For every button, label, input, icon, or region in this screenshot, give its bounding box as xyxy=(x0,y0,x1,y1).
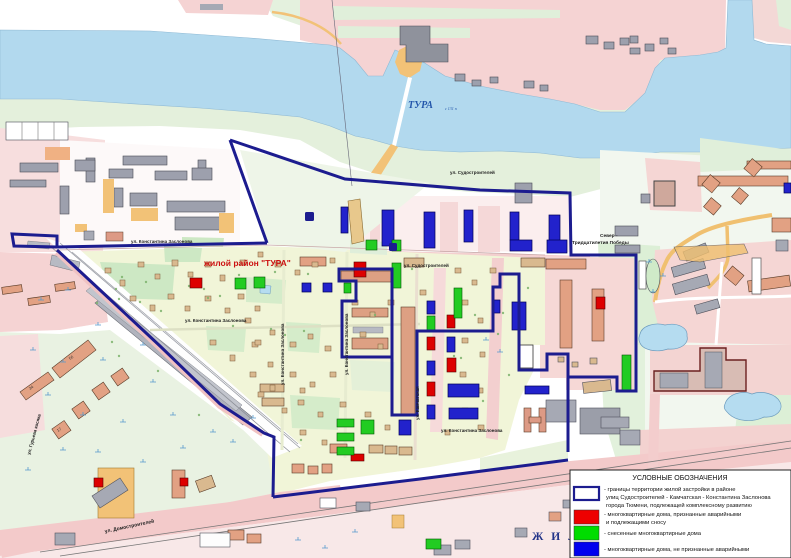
svg-text:с 131 п: с 131 п xyxy=(445,106,457,111)
svg-text:- границы территории жилой зас: - границы территории жилой застройки в р… xyxy=(604,486,735,493)
svg-text:ул. Константина Заслонова: ул. Константина Заслонова xyxy=(280,323,285,385)
svg-text:ул. Судостроителей: ул. Судостроителей xyxy=(450,169,495,175)
svg-text:Север -: Север - xyxy=(600,233,618,239)
svg-text:жилой район "ТУРА": жилой район "ТУРА" xyxy=(203,258,291,268)
svg-text:ул. Судостроителей: ул. Судостроителей xyxy=(404,262,449,268)
svg-text:улиц Судостроителей - Камчатск: улиц Судостроителей - Камчатская - Конст… xyxy=(606,494,771,501)
svg-text:ул. Константина Заслонова: ул. Константина Заслонова xyxy=(185,318,247,323)
svg-text:и подлежащими сносу: и подлежащими сносу xyxy=(606,520,666,526)
svg-text:УСЛОВНЫЕ ОБОЗНАЧЕНИЯ: УСЛОВНЫЕ ОБОЗНАЧЕНИЯ xyxy=(632,475,727,482)
svg-text:ул. Камчатская: ул. Камчатская xyxy=(415,386,420,420)
svg-text:ул. Константина Заслонова: ул. Константина Заслонова xyxy=(344,313,349,375)
svg-text:- многоквартирные дома, не при: - многоквартирные дома, не признанные ав… xyxy=(604,546,749,553)
svg-text:ул. Константина Заслонова: ул. Константина Заслонова xyxy=(131,239,193,244)
svg-text:ТУРА: ТУРА xyxy=(408,100,433,111)
svg-text:города Тюмени, подлежащей комп: города Тюмени, подлежащей комплексному р… xyxy=(606,502,753,509)
svg-text:Тридцатилетия Победы: Тридцатилетия Победы xyxy=(572,239,629,246)
svg-text:- многоквартирные дома, призна: - многоквартирные дома, признанные авари… xyxy=(604,511,741,518)
svg-text:- снесенные многоквартирные до: - снесенные многоквартирные дома xyxy=(604,531,702,537)
svg-text:ул. Константина Заслонова: ул. Константина Заслонова xyxy=(441,428,503,433)
